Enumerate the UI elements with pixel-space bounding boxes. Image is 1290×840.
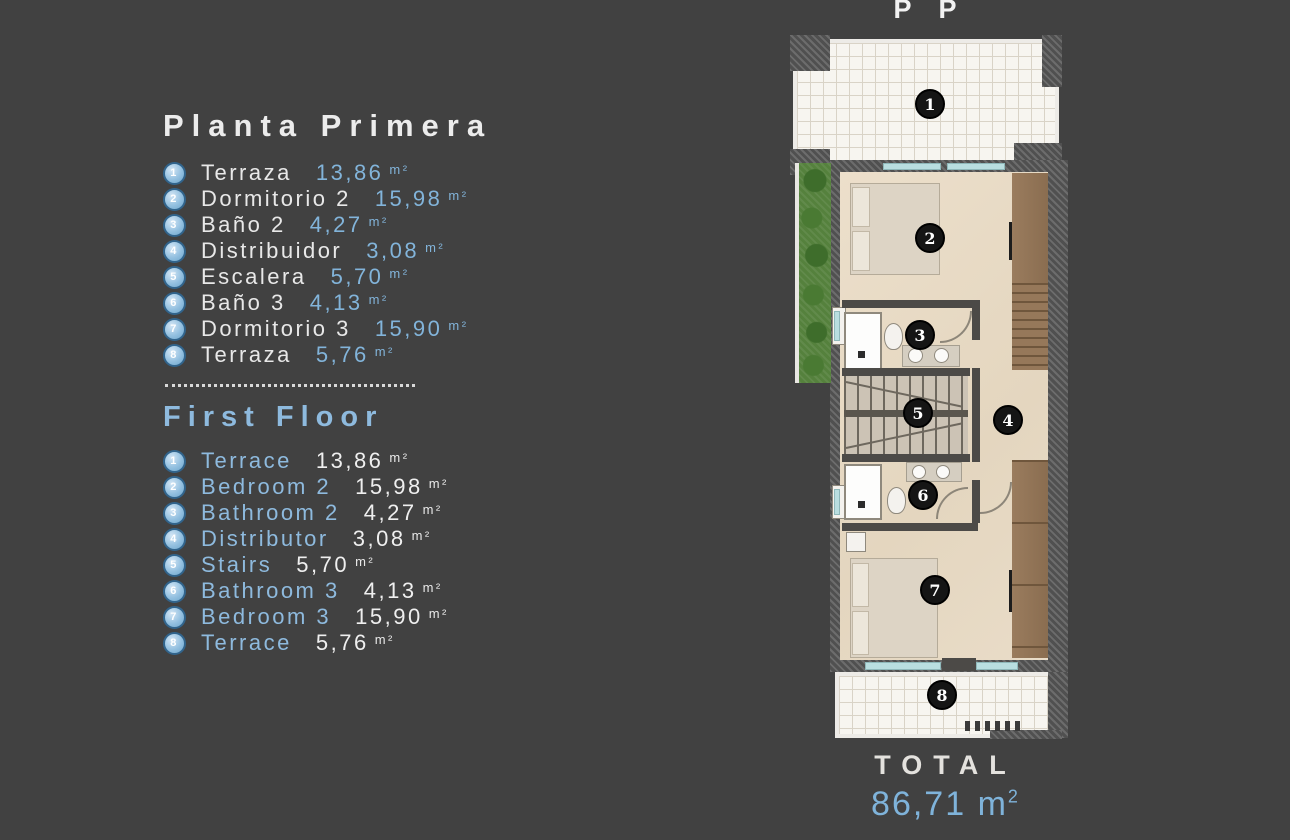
item-number-badge: 2 <box>163 188 186 211</box>
item-number-badge: 5 <box>163 554 186 577</box>
item-label: Terraza <box>201 160 292 186</box>
partition-wall <box>972 480 980 523</box>
partition-wall <box>842 300 978 308</box>
item-area-value: 13,86 <box>316 160 384 186</box>
item-number-badge: 7 <box>163 606 186 629</box>
terrace-grating <box>965 721 1021 731</box>
legend-item-es-4: 4 Distribuidor 3,08 m² <box>163 238 633 264</box>
shower-tray <box>844 464 882 520</box>
plan-marker-4: 4 <box>993 405 1023 435</box>
item-area-unit: m² <box>429 476 449 491</box>
shower-tray <box>844 312 882 370</box>
legend-item-es-6: 6 Baño 3 4,13 m² <box>163 290 633 316</box>
legend-item-en-3: 3 Bathroom 2 4,27 m² <box>163 500 633 526</box>
item-area-value: 15,98 <box>375 186 443 212</box>
item-area-value: 3,08 <box>353 526 406 552</box>
wall-block <box>942 658 976 671</box>
item-number-badge: 3 <box>163 502 186 525</box>
total-area-block: TOTAL 86,71 m2 <box>838 750 1053 824</box>
item-area-value: 5,70 <box>296 552 349 578</box>
item-number-badge: 5 <box>163 266 186 289</box>
legend-item-en-4: 4 Distributor 3,08 m² <box>163 526 633 552</box>
item-area-unit: m² <box>369 292 389 307</box>
total-area-unit: m <box>978 785 1008 823</box>
floor-code-label: P P <box>855 0 1005 25</box>
legend-item-es-7: 7 Dormitorio 3 15,90 m² <box>163 316 633 342</box>
item-label: Escalera <box>201 264 307 290</box>
legend-panel: Planta Primera 1 Terraza 13,86 m² 2 Dorm… <box>163 108 633 656</box>
wardrobe-3 <box>1012 460 1048 658</box>
item-area-unit: m² <box>423 502 443 517</box>
item-area-value: 15,90 <box>355 604 423 630</box>
item-number-badge: 4 <box>163 240 186 263</box>
item-area-unit: m² <box>355 554 375 569</box>
item-number-badge: 6 <box>163 580 186 603</box>
item-label: Bedroom 3 <box>201 604 331 630</box>
plan-marker-1: 1 <box>915 89 945 119</box>
pillow <box>852 563 869 607</box>
item-label: Baño 2 <box>201 212 286 238</box>
item-area-value: 13,86 <box>316 448 384 474</box>
item-label: Dormitorio 3 <box>201 316 351 342</box>
window <box>834 489 840 515</box>
toilet <box>887 487 906 514</box>
partition-wall <box>842 523 978 531</box>
item-number-badge: 8 <box>163 344 186 367</box>
plan-marker-6: 6 <box>908 480 938 510</box>
item-area-value: 4,27 <box>310 212 363 238</box>
item-number-badge: 7 <box>163 318 186 341</box>
pillow <box>852 187 870 227</box>
item-area-unit: m² <box>369 214 389 229</box>
item-label: Distributor <box>201 526 329 552</box>
item-label: Dormitorio 2 <box>201 186 351 212</box>
item-area-value: 5,76 <box>316 630 369 656</box>
legend-item-en-7: 7 Bedroom 3 15,90 m² <box>163 604 633 630</box>
item-area-value: 5,70 <box>331 264 384 290</box>
nightstand <box>846 532 866 552</box>
item-area-value: 4,13 <box>364 578 417 604</box>
partition-wall <box>842 368 970 376</box>
item-area-unit: m² <box>448 318 468 333</box>
item-number-badge: 3 <box>163 214 186 237</box>
item-number-badge: 4 <box>163 528 186 551</box>
item-area-unit: m² <box>389 162 409 177</box>
legend-item-es-3: 3 Baño 2 4,27 m² <box>163 212 633 238</box>
item-label: Terraza <box>201 342 292 368</box>
item-number-badge: 8 <box>163 632 186 655</box>
floor-plan: 1 2 3 4 5 6 7 8 <box>790 35 1075 745</box>
total-area-value: 86,71 <box>871 785 966 823</box>
window <box>976 662 1018 670</box>
window <box>947 163 1005 170</box>
wardrobe-2-shelves <box>1012 283 1048 370</box>
toilet <box>884 323 903 350</box>
item-area-unit: m² <box>389 266 409 281</box>
item-area-unit: m² <box>448 188 468 203</box>
partition-wall <box>842 454 970 462</box>
sink-basin <box>908 348 923 363</box>
total-area-unit-sup: 2 <box>1008 787 1020 807</box>
partition-wall <box>972 300 980 340</box>
item-label: Bedroom 2 <box>201 474 331 500</box>
dotted-divider <box>165 384 415 387</box>
item-number-badge: 1 <box>163 450 186 473</box>
wall-block <box>790 35 830 71</box>
item-label: Terrace <box>201 448 292 474</box>
window <box>834 311 840 341</box>
item-label: Terrace <box>201 630 292 656</box>
plan-marker-2: 2 <box>915 223 945 253</box>
item-area-unit: m² <box>429 606 449 621</box>
item-area-unit: m² <box>389 450 409 465</box>
legend-item-es-1: 1 Terraza 13,86 m² <box>163 160 633 186</box>
item-area-unit: m² <box>412 528 432 543</box>
total-label: TOTAL <box>838 750 1053 781</box>
plan-marker-5: 5 <box>903 398 933 428</box>
legend-item-es-8: 8 Terraza 5,76 m² <box>163 342 633 368</box>
item-area-unit: m² <box>425 240 445 255</box>
legend-item-en-6: 6 Bathroom 3 4,13 m² <box>163 578 633 604</box>
item-area-value: 5,76 <box>316 342 369 368</box>
legend-item-es-5: 5 Escalera 5,70 m² <box>163 264 633 290</box>
partition-wall <box>972 368 980 462</box>
legend-item-en-1: 1 Terrace 13,86 m² <box>163 448 633 474</box>
legend-title-english: First Floor <box>163 401 633 434</box>
item-area-value: 4,13 <box>310 290 363 316</box>
item-area-value: 4,27 <box>364 500 417 526</box>
total-value: 86,71 m2 <box>838 785 1053 824</box>
item-area-unit: m² <box>375 632 395 647</box>
sink-basin <box>934 348 949 363</box>
garden-strip <box>795 163 831 383</box>
item-label: Distribuidor <box>201 238 342 264</box>
wall-block <box>990 730 1062 739</box>
legend-title-spanish: Planta Primera <box>163 108 633 144</box>
wardrobe-2 <box>1012 173 1048 283</box>
plan-marker-8: 8 <box>927 680 957 710</box>
wall-block <box>1042 35 1062 87</box>
wardrobe-handle <box>1009 570 1012 612</box>
legend-item-es-2: 2 Dormitorio 2 15,98 m² <box>163 186 633 212</box>
pillow <box>852 611 869 655</box>
item-area-unit: m² <box>375 344 395 359</box>
item-label: Baño 3 <box>201 290 286 316</box>
legend-item-en-5: 5 Stairs 5,70 m² <box>163 552 633 578</box>
plan-poster: P P Planta Primera 1 Terraza 13,86 m² 2 … <box>0 0 1290 840</box>
plan-marker-7: 7 <box>920 575 950 605</box>
legend-item-en-8: 8 Terrace 5,76 m² <box>163 630 633 656</box>
window <box>883 163 941 170</box>
item-area-value: 15,90 <box>375 316 443 342</box>
legend-item-en-2: 2 Bedroom 2 15,98 m² <box>163 474 633 500</box>
item-area-unit: m² <box>423 580 443 595</box>
item-area-value: 15,98 <box>355 474 423 500</box>
pillow <box>852 231 870 271</box>
plan-marker-3: 3 <box>905 320 935 350</box>
item-number-badge: 6 <box>163 292 186 315</box>
item-area-value: 3,08 <box>366 238 419 264</box>
shower-drain <box>858 501 865 508</box>
shower-drain <box>858 351 865 358</box>
item-number-badge: 2 <box>163 476 186 499</box>
wall-block <box>1048 672 1068 738</box>
item-number-badge: 1 <box>163 162 186 185</box>
item-label: Bathroom 2 <box>201 500 340 526</box>
item-label: Stairs <box>201 552 272 578</box>
sink-basin <box>912 465 926 479</box>
sink-basin <box>936 465 950 479</box>
window <box>865 662 941 670</box>
wardrobe-handle <box>1009 222 1012 260</box>
item-label: Bathroom 3 <box>201 578 340 604</box>
